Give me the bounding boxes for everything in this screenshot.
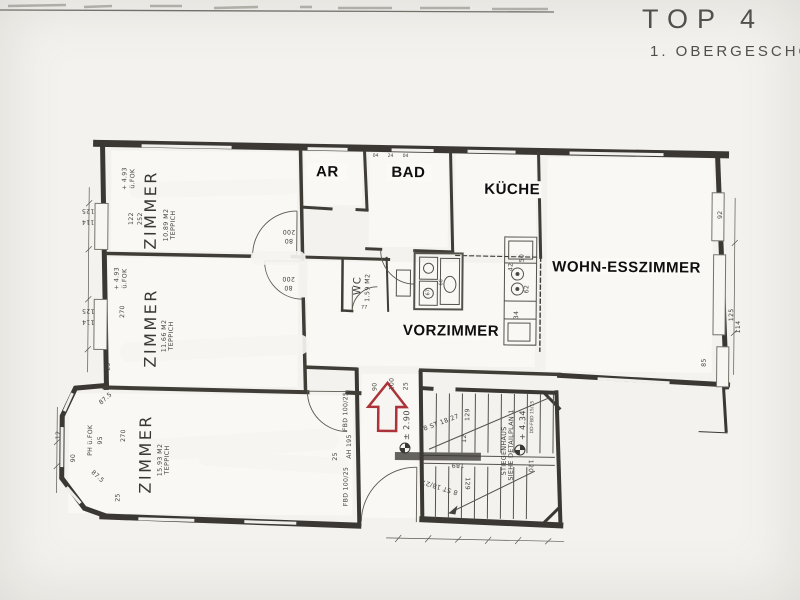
dimension-label: 04 <box>373 153 379 159</box>
level-label-landing: ± 2.90 <box>402 410 411 440</box>
dimension-label: 129 <box>464 408 471 421</box>
dimension-label: 12 <box>461 434 468 443</box>
room-floor-zimmer-top: TEPPICH <box>170 210 177 240</box>
dimension-label: FBD 100/25 <box>342 392 349 431</box>
level-label: ü.FOK <box>129 168 136 189</box>
dimension-label: 122 <box>128 212 135 225</box>
dimension-label: 50 <box>519 254 526 263</box>
dimension-label: 25 <box>332 452 339 461</box>
room-floor-zimmer-bottom: TEPPICH <box>164 445 171 475</box>
dimension-label: 67 <box>425 289 431 295</box>
room-area-wc: 1.59 M2 <box>364 274 371 302</box>
stair-note-label: SIEHE DETAILPLAN 1 <box>507 409 516 480</box>
header-strike-line <box>0 10 554 12</box>
stair-flight-label: 8 ST 18/27 <box>421 478 459 497</box>
level-label: + 4.93 <box>113 267 120 290</box>
dimension-label: 114 <box>82 318 95 325</box>
dimension-label: 114 <box>735 321 742 334</box>
dimension-label: 95 <box>97 436 104 445</box>
room-label-wohn-esszimmer: WOHN-ESSZIMMER <box>552 258 701 276</box>
dimension-label: 189 <box>451 461 464 468</box>
floorplan-drawing: TOP 4 1. OBERGESCHO <box>0 0 800 600</box>
dimension-label: 24 <box>388 153 394 159</box>
scan-smudge-header <box>8 5 548 9</box>
dimension-label: 90 <box>70 454 77 463</box>
dimension-label: 125 <box>728 309 735 322</box>
dimension-label: 25 <box>114 493 121 502</box>
dimension-label: 125 <box>82 207 95 214</box>
dimension-label: 120 <box>527 460 534 473</box>
dimension-label: 129 <box>464 477 471 490</box>
dimension-label: 90 <box>371 383 378 392</box>
scanned-floorplan-page: TOP 4 1. OBERGESCHO <box>0 0 800 600</box>
room-label-bad: BAD <box>391 164 425 181</box>
level-label-stair: + 4.34 <box>518 410 527 440</box>
dimension-label: 252 <box>137 212 144 225</box>
door-dimension-label: 80 <box>285 237 294 244</box>
dimension-label: 34 <box>513 311 520 320</box>
dimension-label: 100 <box>388 378 395 391</box>
level-label: + 4.93 <box>121 167 128 190</box>
plan-title: TOP 4 <box>642 4 764 34</box>
title-block: TOP 4 1. OBERGESCHO <box>642 4 800 60</box>
dimension-label: 85 <box>701 358 708 367</box>
door-dimension-label: 200 <box>282 275 295 282</box>
dimension-label: 04 <box>403 153 409 159</box>
dimension-label: 114 <box>82 218 95 225</box>
level-label: ü.FOK <box>121 268 128 289</box>
level-label: PH ü.FOK <box>87 424 94 456</box>
room-label-ar: AR <box>316 163 339 180</box>
room-label-kueche: KÜCHE <box>484 181 540 198</box>
dimension-label: 25 <box>402 382 409 391</box>
dimension-label: 125 <box>82 307 95 314</box>
dimension-label: 62 <box>523 285 530 294</box>
dimension-label: 270 <box>119 305 126 318</box>
dimension-label: 25 <box>105 362 112 371</box>
stair-flight-label: 8 ST 18/27 <box>422 412 460 433</box>
room-label-zimmer-top: ZIMMER <box>141 170 161 250</box>
dimension-label: 42 <box>508 263 515 272</box>
stair-slab-note: DD-FBD 15/15 <box>529 401 535 434</box>
room-label-vorzimmer: VORZIMMER <box>403 322 499 340</box>
dimension-label: 77 <box>361 305 367 311</box>
room-label-zimmer-mid: ZIMMER <box>141 288 161 368</box>
door-dimension-label: 80 <box>284 284 293 291</box>
dimension-label: 92 <box>717 211 724 220</box>
room-label-zimmer-bottom: ZIMMER <box>136 414 156 494</box>
dimension-label: 12 <box>55 431 62 440</box>
dimension-label: 270 <box>120 429 127 442</box>
door-dimension-label: 200 <box>282 228 295 235</box>
plan-subtitle: 1. OBERGESCHO <box>650 43 800 60</box>
plan: AR BAD KÜCHE WOHN-ESSZIMMER VORZIMMER ZI… <box>53 143 743 546</box>
room-floor-zimmer-mid: TEPPICH <box>168 321 175 351</box>
dimension-label: AH 195 <box>346 434 353 459</box>
room-label-wc: WC <box>352 276 363 295</box>
dimension-label: 60 <box>438 279 444 285</box>
dimension-label: FBD 100/25 <box>342 467 349 506</box>
